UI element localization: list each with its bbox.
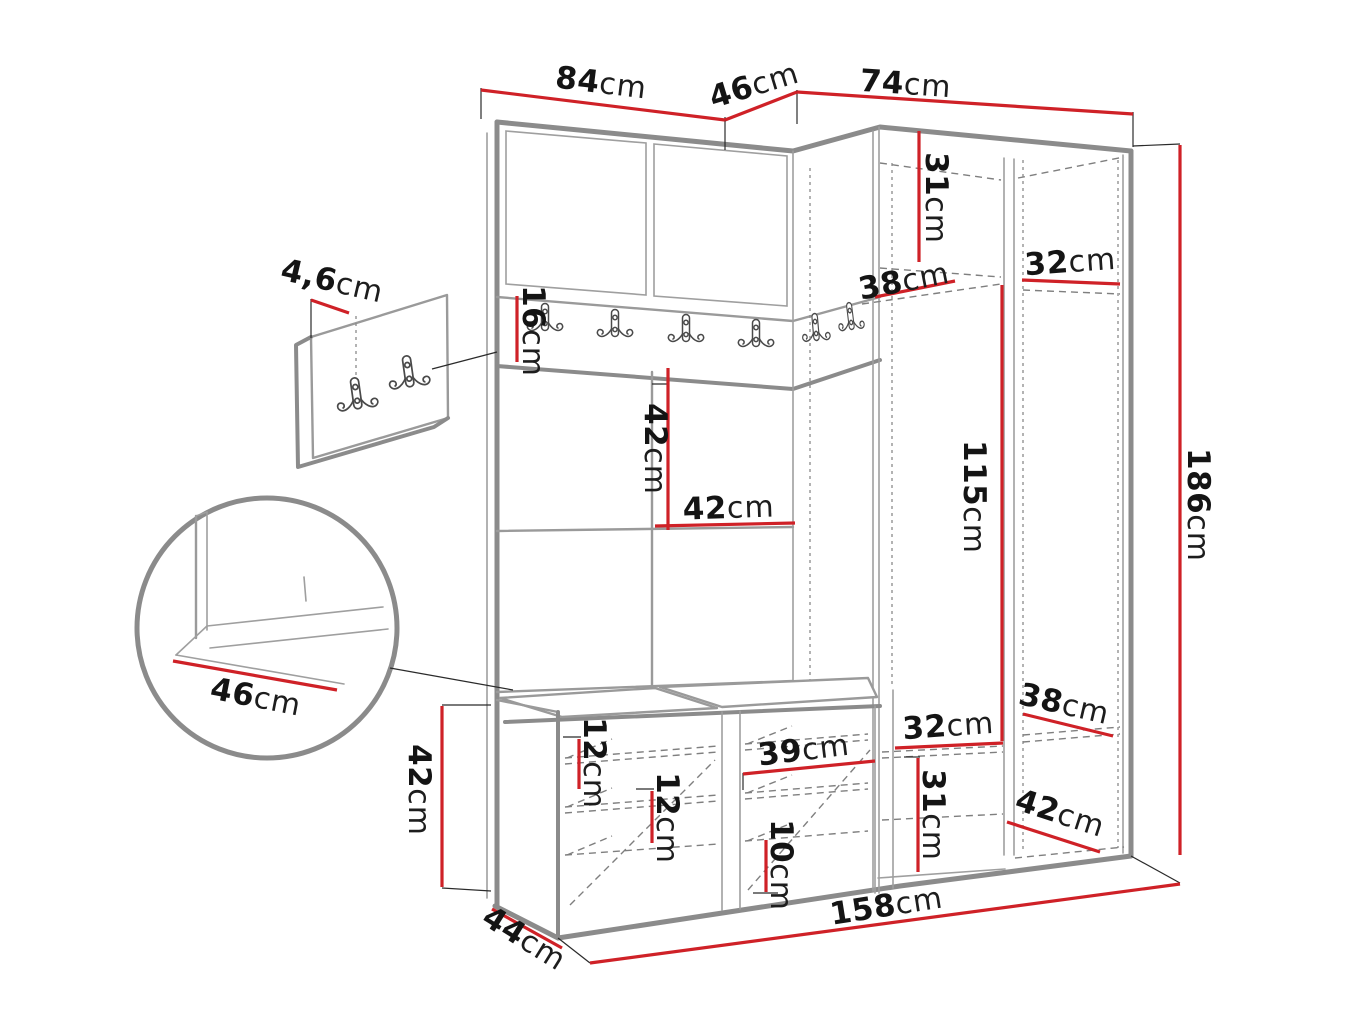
dim-label-shoe-shelf-spacing-mid: 12cm <box>649 772 685 864</box>
floor-edge <box>495 856 1131 938</box>
dim-label-wall-panel-width: 42cm <box>682 488 775 527</box>
coat-hook-icon <box>597 310 632 337</box>
dim-label-bench-height: 42cm <box>401 744 437 836</box>
dim-label-wall-panel-height: 42cm <box>637 403 673 495</box>
dim-line-right-section-width <box>797 92 1133 114</box>
dim-label-shoe-shelf-spacing-top: 12cm <box>576 717 612 809</box>
panel-seam-horizontal <box>497 527 793 531</box>
dim-label-wall-panel-thickness: 4,6cm <box>277 252 387 311</box>
coat-hook-icon <box>668 315 703 342</box>
coat-hook-icon <box>386 353 430 389</box>
coat-hook-icon <box>334 375 378 411</box>
furniture-dimension-diagram: 84cm 46cm 74cm 186cm 4,6cm 16cm 31cm 38c… <box>0 0 1369 1027</box>
hook-rail-bottom-edge <box>497 360 880 389</box>
dim-label-lower-right-shelf-depth: 42cm <box>1011 782 1109 845</box>
dim-label-lower-side-shelf-width: 32cm <box>901 705 995 747</box>
coat-hook-icon <box>836 301 864 331</box>
dim-label-hanging-space-height: 115cm <box>956 440 992 554</box>
hook-rail <box>497 297 880 389</box>
coat-hook-icon <box>738 320 773 347</box>
diagram-canvas: 84cm 46cm 74cm 186cm 4,6cm 16cm 31cm 38c… <box>0 0 1369 1027</box>
seat-corner-detail <box>137 498 513 758</box>
dim-label-top-shelf-height: 31cm <box>918 152 954 244</box>
dim-label-hook-rail-height: 16cm <box>515 285 551 377</box>
magnifier-circle <box>137 498 397 758</box>
top-edge <box>497 122 1131 151</box>
upper-door-left <box>506 131 646 295</box>
upper-door-right <box>654 144 787 306</box>
wall-panel-detail <box>296 295 497 467</box>
dim-label-bench-bottom-spacing: 10cm <box>763 819 799 911</box>
dim-label-top-shelf-depth: 38cm <box>856 255 953 308</box>
dim-label-bench-compartment-width: 39cm <box>756 727 852 774</box>
dim-label-corner-section-width: 46cm <box>705 55 803 116</box>
dim-label-top-side-shelf-width: 32cm <box>1023 241 1117 283</box>
dim-label-total-height: 186cm <box>1180 448 1216 562</box>
dim-label-lower-side-shelf-height: 31cm <box>915 769 951 861</box>
dim-label-right-section-width: 74cm <box>859 63 953 105</box>
